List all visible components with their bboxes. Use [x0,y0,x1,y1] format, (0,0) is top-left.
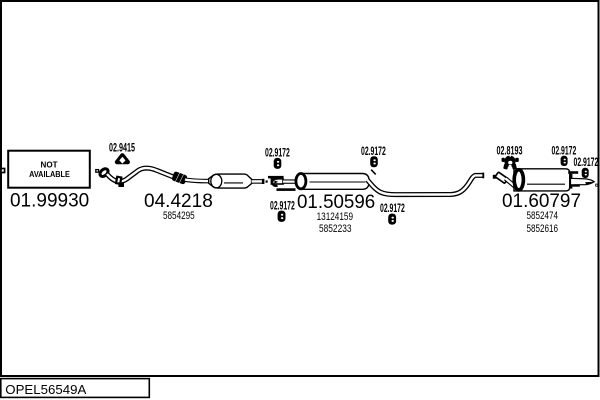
svg-text:02.9172: 02.9172 [270,199,295,213]
svg-text:02.9172: 02.9172 [380,201,405,215]
svg-text:02.9172: 02.9172 [361,144,386,158]
svg-text:5852616: 5852616 [527,223,559,235]
svg-text:NOT: NOT [41,160,58,169]
svg-text:5852233: 5852233 [319,223,352,235]
svg-text:5852474: 5852474 [527,210,559,222]
svg-text:01.99930: 01.99930 [10,191,89,212]
svg-text:AVAILABLE: AVAILABLE [29,170,70,179]
svg-text:02.9172: 02.9172 [574,155,599,169]
svg-text:OPEL56549A: OPEL56549A [5,382,86,397]
svg-text:01.60797: 01.60797 [502,191,581,212]
svg-text:02.9415: 02.9415 [109,141,135,155]
svg-text:5854295: 5854295 [163,210,195,222]
svg-text:02.9172: 02.9172 [265,146,290,160]
svg-text:13124159: 13124159 [317,211,353,223]
